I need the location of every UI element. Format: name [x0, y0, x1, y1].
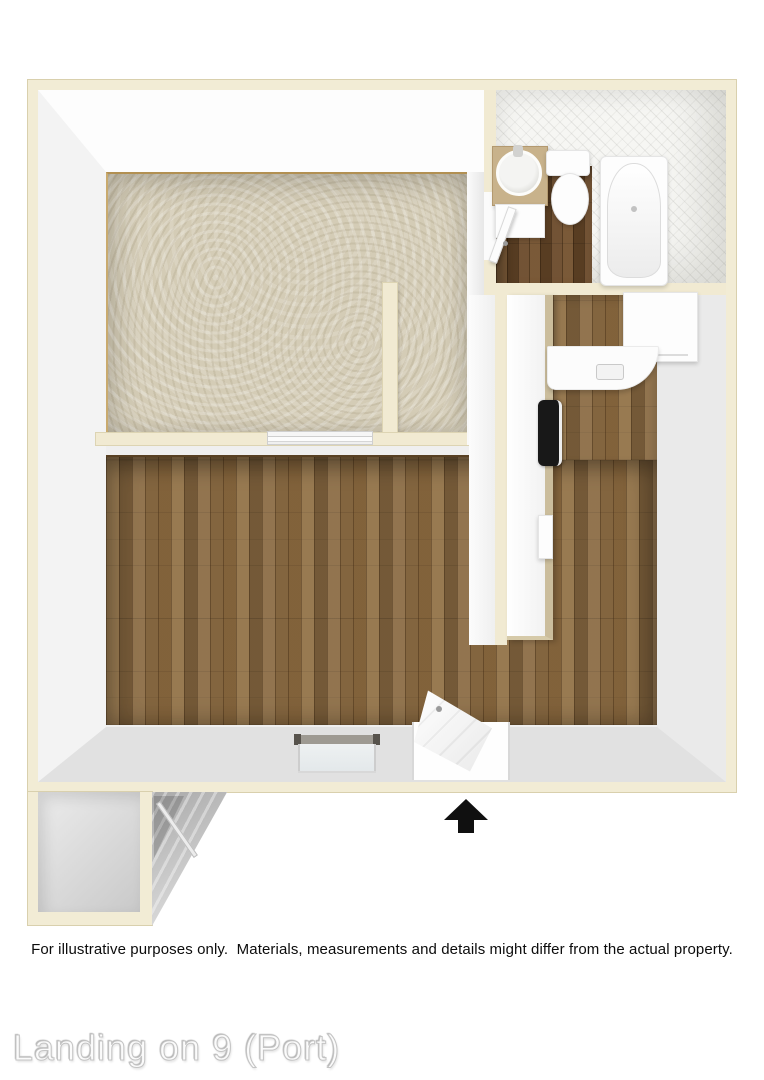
window — [294, 735, 380, 744]
floor-plan-image: For illustrative purposes only. Material… — [0, 0, 764, 1080]
bathtub-basin — [607, 163, 661, 278]
disclaimer-text: For illustrative purposes only. Material… — [0, 941, 764, 958]
bathroom-faucet-icon — [513, 145, 523, 157]
window-glass — [298, 744, 376, 772]
exterior-nook-interior — [38, 792, 140, 912]
bedroom-door-track — [267, 431, 373, 445]
bathtub-drain-icon — [631, 206, 637, 212]
stove — [538, 400, 562, 466]
toilet-bowl — [551, 173, 589, 225]
entry-door-knob-icon — [436, 706, 442, 712]
watermark-text: Landing on 9 (Port) — [13, 1027, 340, 1069]
kitchen-counter-back — [469, 295, 497, 645]
closet-partition-wall — [383, 283, 397, 433]
bathroom-door-knob-icon — [503, 241, 508, 246]
window-sill — [298, 771, 376, 773]
bedroom-carpet — [106, 172, 467, 433]
kitchen-sink-basin — [596, 364, 624, 380]
kitchen-lower-cabinet — [538, 515, 553, 559]
living-room-floor — [106, 455, 657, 725]
kitchen-left-wall — [495, 295, 507, 645]
entry-arrow-stem — [458, 820, 474, 833]
entry-arrow-icon — [444, 799, 488, 820]
